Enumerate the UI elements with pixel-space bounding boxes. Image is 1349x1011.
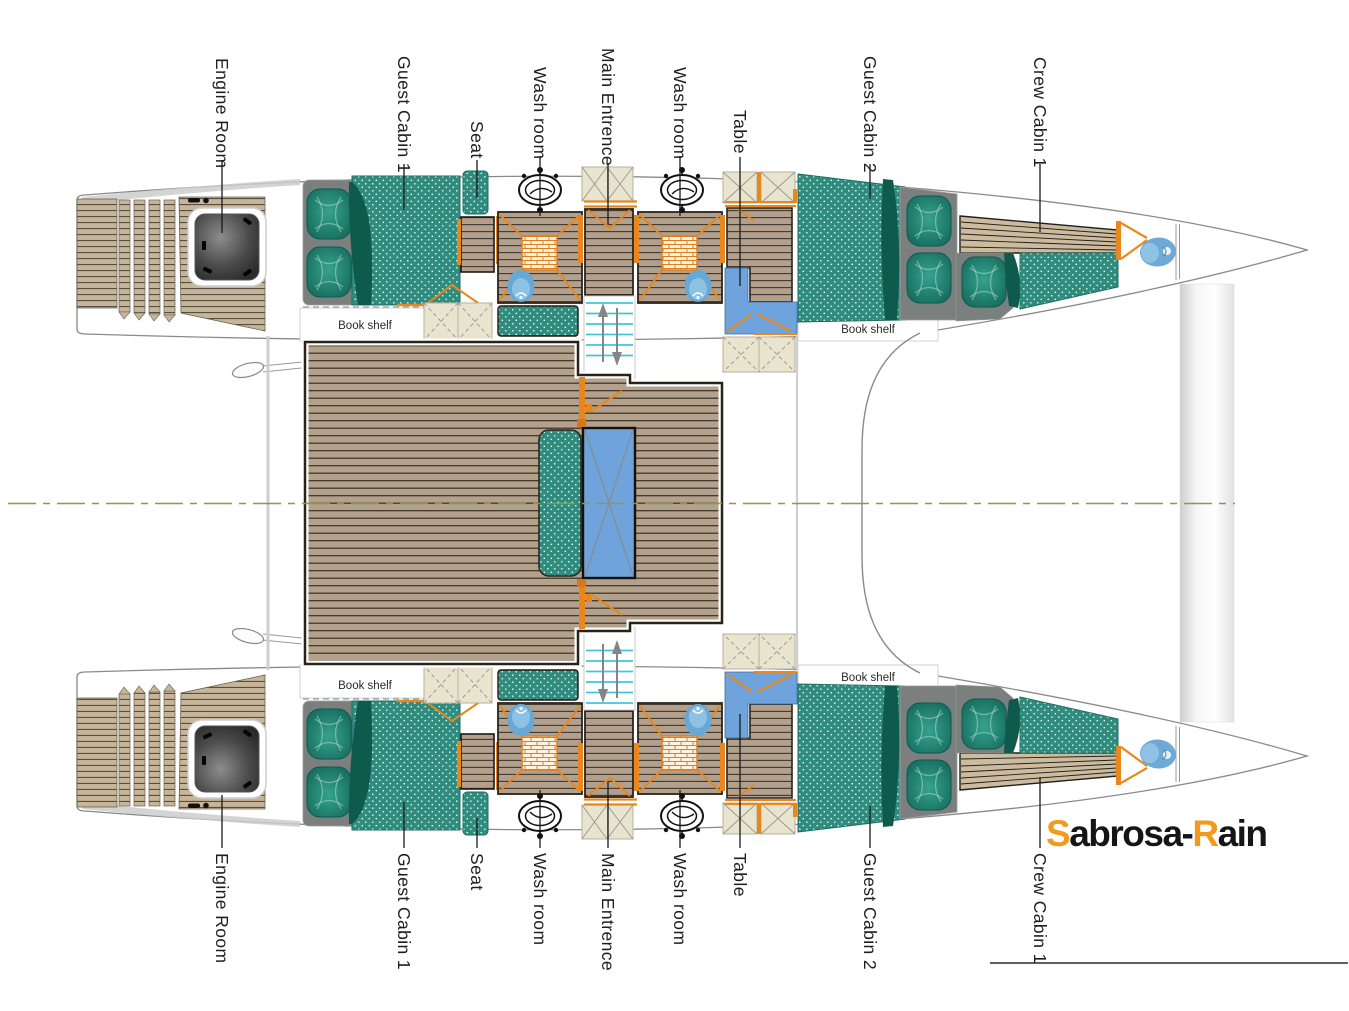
bow-locker-door	[1116, 221, 1121, 260]
label-wash-room-1-bottom: Wash room	[530, 853, 550, 945]
guest-cabin-2-bed	[798, 174, 957, 322]
toilet	[508, 270, 535, 302]
main-entrence	[582, 167, 637, 378]
label-main-entrence-bottom: Main Entrence	[598, 853, 618, 971]
guest-cabin-1-bed	[303, 176, 481, 307]
stern-cleat-dot	[203, 198, 209, 204]
starboard-hull	[77, 626, 1307, 839]
stairs	[584, 296, 635, 378]
logo-text-2: ain	[1218, 813, 1267, 854]
label-guest-cabin-2-bottom: Guest Cabin 2	[860, 853, 880, 970]
engine-room-hatch	[188, 208, 266, 286]
catamaran-deck-plan: Book shelf Book shelf Book shelf Book sh…	[0, 0, 1349, 1011]
label-engine-room-bottom: Engine Room	[212, 853, 232, 963]
label-table-bottom: Table	[730, 853, 750, 897]
label-wash-room-1-top: Wash room	[530, 67, 550, 159]
pillow	[907, 253, 951, 303]
label-engine-room-top: Engine Room	[212, 58, 232, 168]
shower-mat	[522, 236, 557, 270]
bench-cushion	[498, 306, 578, 336]
deck-plan-page: Book shelf Book shelf Book shelf Book sh…	[0, 0, 1349, 1011]
label-seat-bottom: Seat	[467, 853, 487, 891]
deck-hatch	[424, 303, 492, 340]
port-hull	[77, 167, 1307, 380]
label-crew-cabin-1-top: Crew Cabin 1	[1030, 57, 1050, 168]
label-wash-room-2-top: Wash room	[670, 67, 690, 159]
table-area	[723, 172, 797, 372]
toilet	[685, 270, 712, 302]
label-guest-cabin-1-bottom: Guest Cabin 1	[394, 853, 414, 970]
label-crew-cabin-1-bottom: Crew Cabin 1	[1030, 853, 1050, 964]
logo-accent-s: S	[1046, 813, 1070, 854]
label-main-entrence-top: Main Entrence	[598, 48, 618, 166]
book-shelf-label: Book shelf	[338, 680, 393, 692]
logo-accent-r: R	[1192, 813, 1218, 854]
book-shelf-label: Book shelf	[841, 672, 896, 684]
stern-cleat	[188, 198, 200, 203]
shower-mat	[662, 236, 697, 270]
pillow	[307, 247, 351, 297]
pillow	[307, 189, 351, 239]
logo-text-1: abrosa-	[1069, 813, 1192, 854]
book-shelf-label: Book shelf	[841, 324, 896, 336]
label-wash-room-2-bottom: Wash room	[670, 853, 690, 945]
label-seat-top: Seat	[467, 121, 487, 159]
label-guest-cabin-2-top: Guest Cabin 2	[860, 56, 880, 173]
pillow	[962, 257, 1006, 307]
label-table-top: Table	[730, 110, 750, 154]
book-shelf-label: Book shelf	[338, 320, 393, 332]
brand-logo: Sabrosa-Rain	[1046, 813, 1267, 854]
label-guest-cabin-1-top: Guest Cabin 1	[394, 56, 414, 173]
pillow	[907, 196, 951, 246]
